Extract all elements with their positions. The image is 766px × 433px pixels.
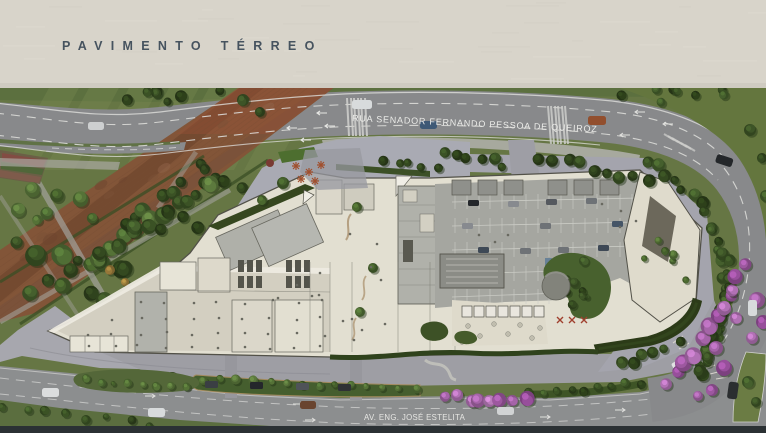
svg-text:PAVIMENTO TÉRREO: PAVIMENTO TÉRREO — [62, 38, 323, 53]
